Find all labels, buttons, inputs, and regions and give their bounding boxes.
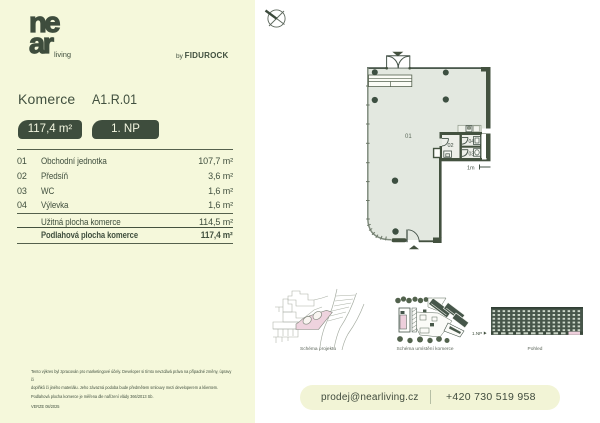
svg-text:living: living	[54, 50, 71, 59]
svg-text:1.NP: 1.NP	[472, 331, 482, 336]
svg-text:ar: ar	[29, 28, 54, 60]
svg-text:1m: 1m	[467, 166, 475, 172]
svg-text:02: 02	[448, 143, 454, 149]
svg-text:01: 01	[405, 134, 412, 140]
